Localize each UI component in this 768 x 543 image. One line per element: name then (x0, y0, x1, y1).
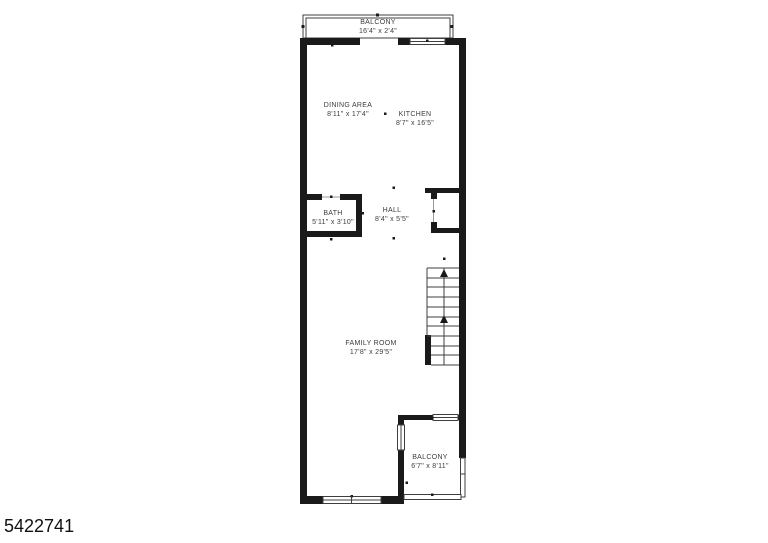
room-name: BALCONY (411, 453, 449, 462)
top-wall-window (410, 39, 445, 45)
room-label-kitchen: KITCHEN 8'7" x 16'5" (396, 110, 434, 128)
room-dimensions: 5'11" x 3'10" (312, 218, 354, 227)
room-label-bath: BATH 5'11" x 3'10" (312, 209, 354, 227)
stairs-up-arrow (440, 315, 448, 323)
staircase (425, 258, 459, 366)
stairs-up-arrow (440, 269, 448, 277)
room-name: FAMILY ROOM (345, 339, 396, 348)
room-label-dining-area: DINING AREA 8'11" x 17'4" (324, 101, 372, 119)
room-dimensions: 8'4" x 5'5" (375, 215, 409, 224)
room-dimensions: 6'7" x 8'11" (411, 462, 449, 471)
room-name: HALL (375, 206, 409, 215)
lower-balcony-top-window (431, 415, 458, 421)
landing-door (433, 199, 436, 222)
room-name: KITCHEN (396, 110, 434, 119)
room-label-balcony-bottom: BALCONY 6'7" x 8'11" (411, 453, 449, 471)
room-name: DINING AREA (324, 101, 372, 110)
room-name: BATH (312, 209, 354, 218)
plan-id: 5422741 (4, 516, 74, 536)
room-label-balcony-top: BALCONY 16'4" x 2'4" (359, 18, 397, 36)
landing-walls (425, 188, 459, 233)
floor-plan-canvas (0, 0, 768, 543)
room-dimensions: 8'11" x 17'4" (324, 110, 372, 119)
room-label-hall: HALL 8'4" x 5'5" (375, 206, 409, 224)
room-label-family-room: FAMILY ROOM 17'8" x 29'5" (345, 339, 396, 357)
floor-plan: BALCONY 16'4" x 2'4" DINING AREA 8'11" x… (0, 0, 768, 543)
room-name: BALCONY (359, 18, 397, 27)
room-dimensions: 17'8" x 29'5" (345, 348, 396, 357)
bath-door (322, 196, 340, 199)
room-dimensions: 8'7" x 16'5" (396, 119, 434, 128)
room-dimensions: 16'4" x 2'4" (359, 27, 397, 36)
bottom-wall-window (323, 495, 381, 504)
